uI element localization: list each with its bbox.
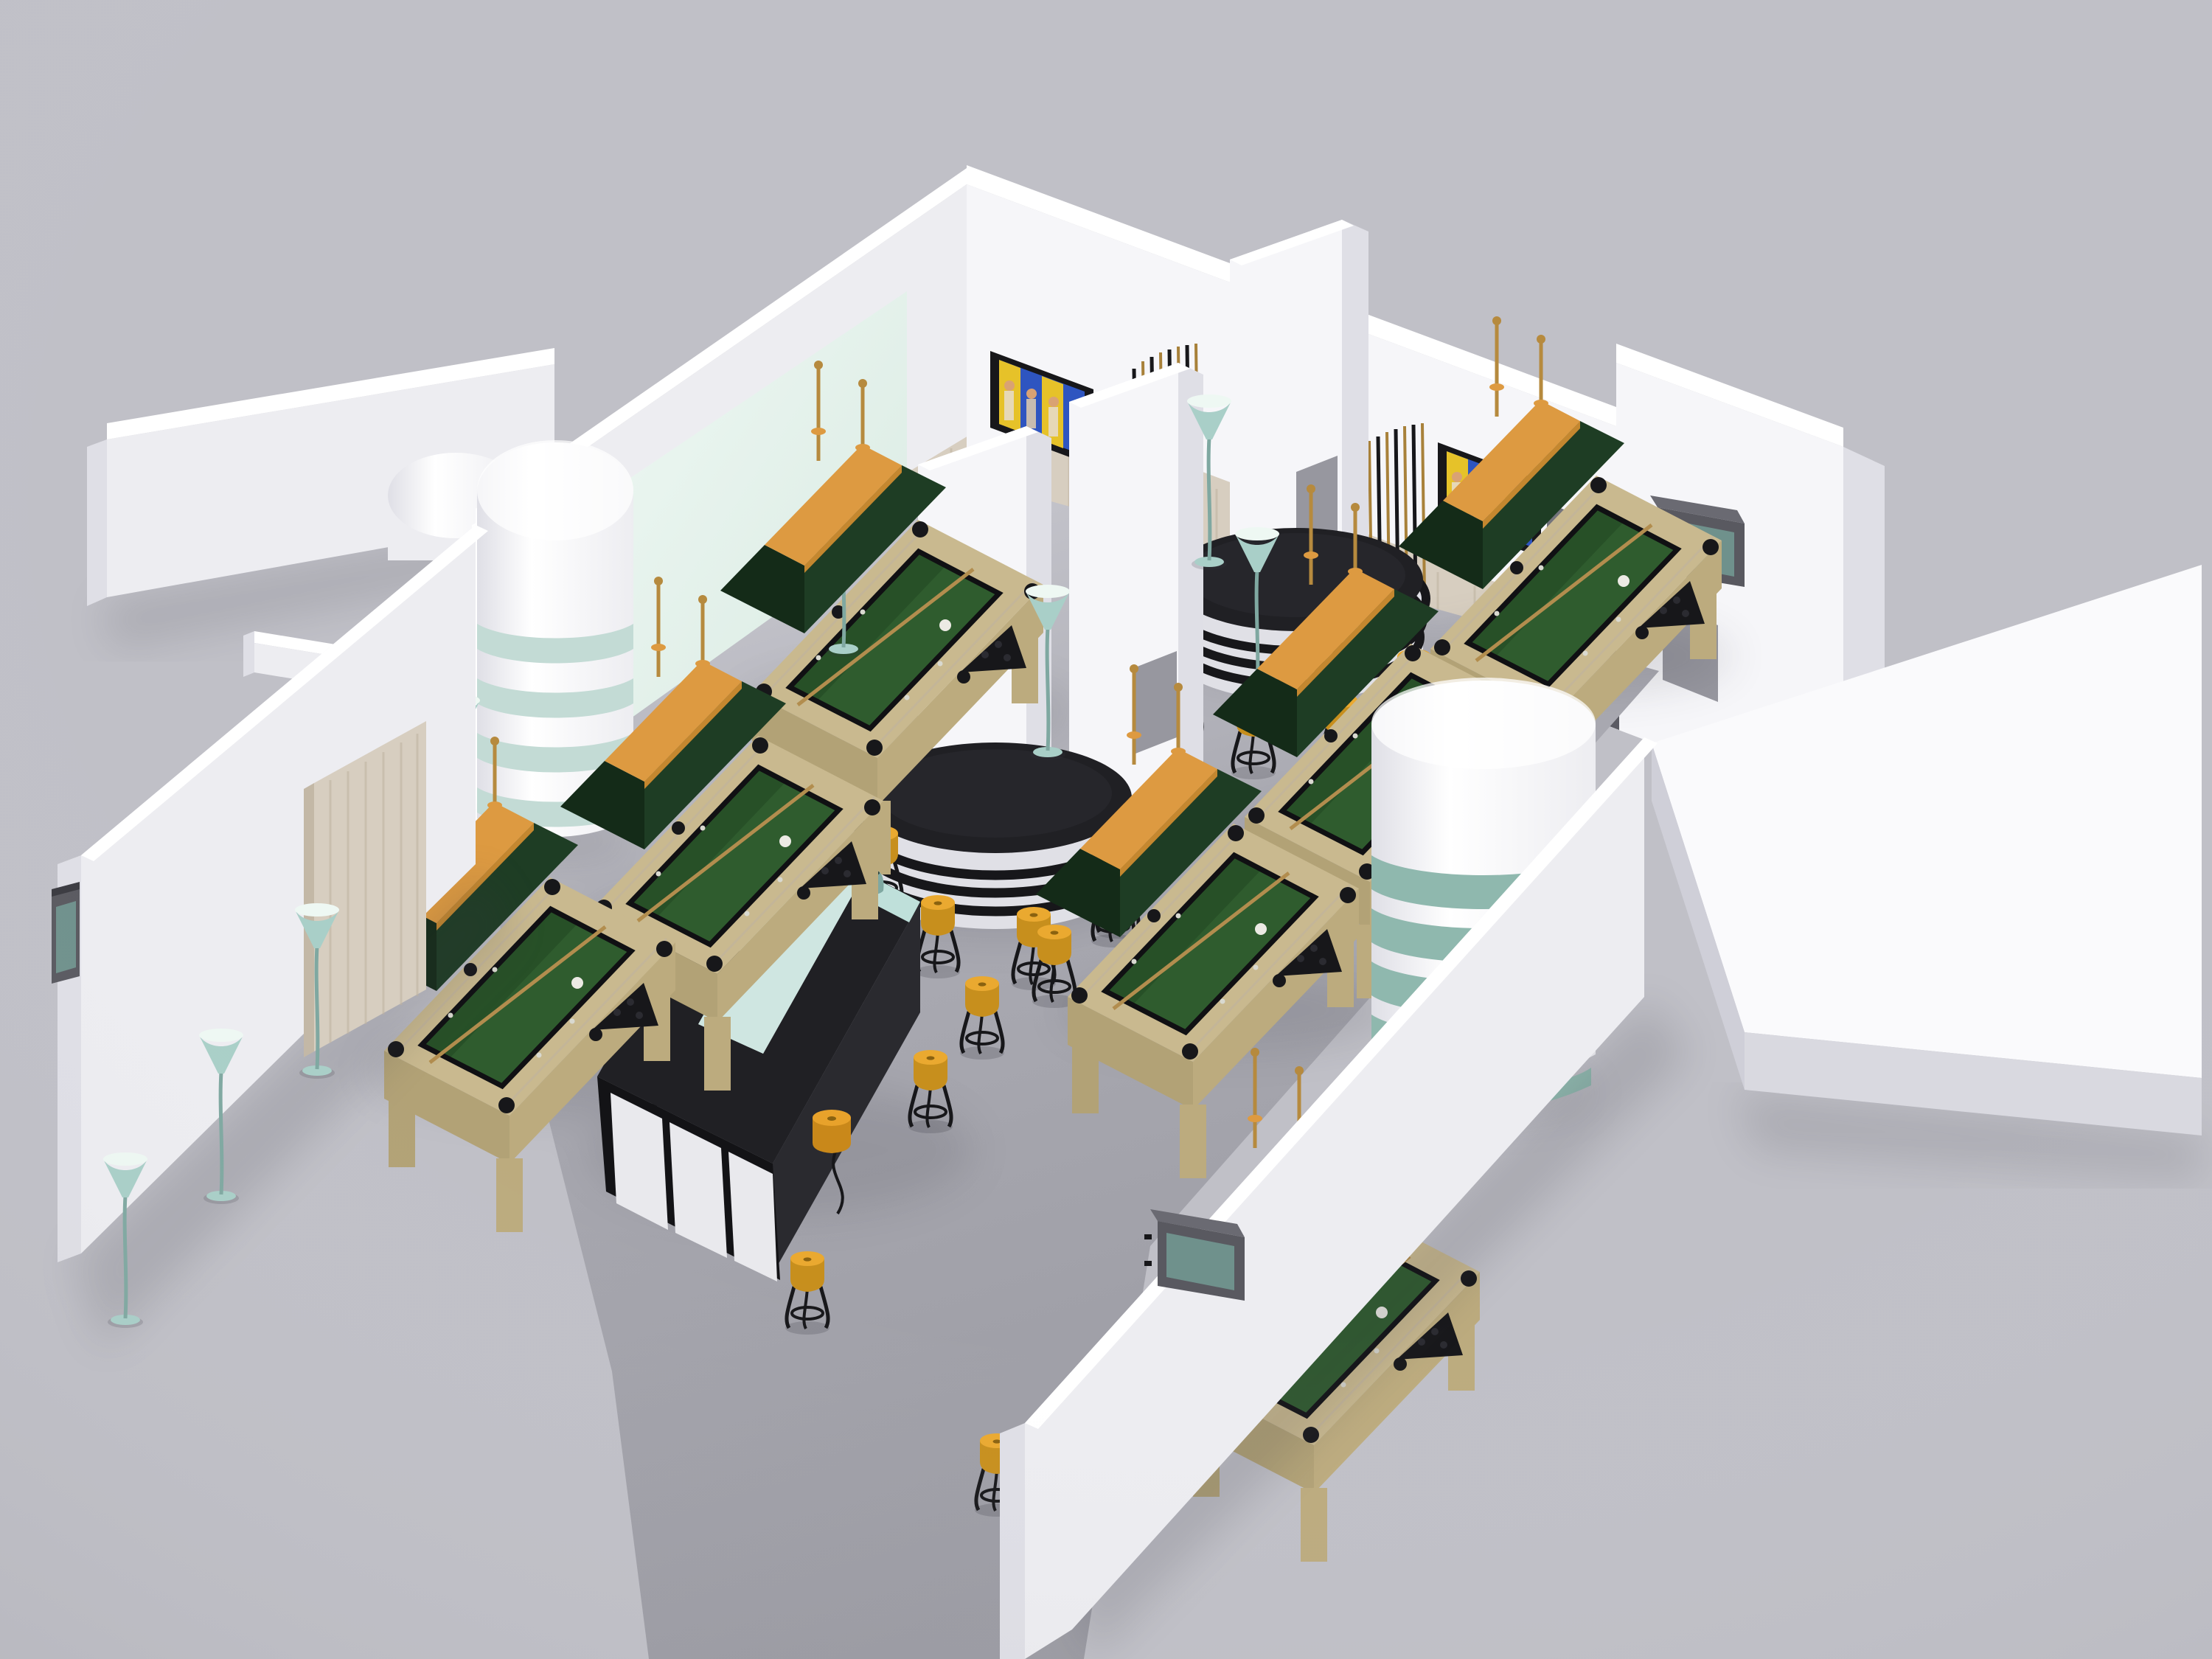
light-vignette (0, 0, 2212, 1659)
billiard-club-render: Isometric cutaway render of a billiard c… (0, 0, 2212, 1659)
